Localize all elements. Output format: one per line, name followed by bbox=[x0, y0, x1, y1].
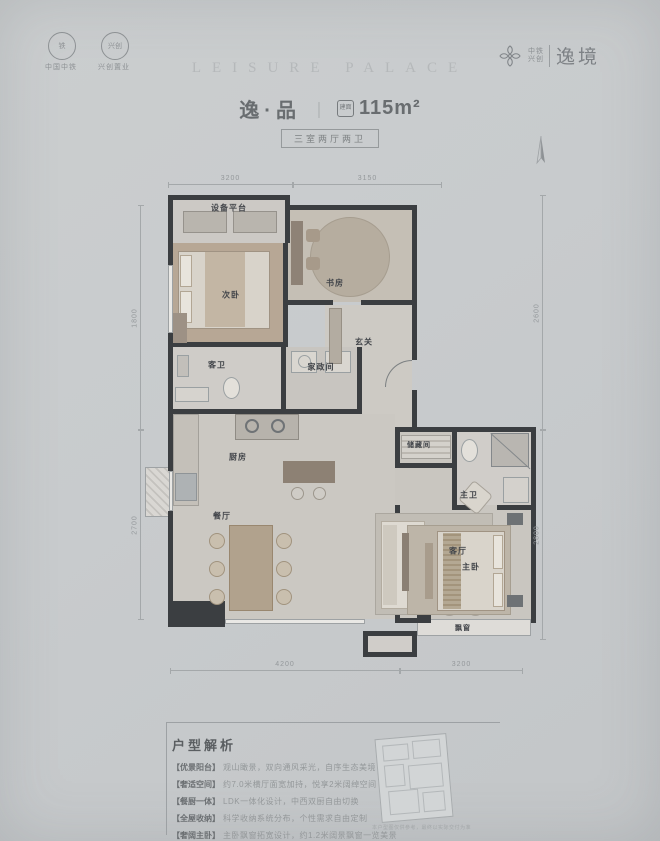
china-railway-seal-icon: 铁 bbox=[48, 32, 76, 60]
bed-bench bbox=[425, 543, 433, 599]
room-label-master-bed: 主卧 bbox=[462, 562, 480, 573]
dining-chair bbox=[209, 533, 225, 549]
room-label-foyer: 玄关 bbox=[355, 337, 373, 348]
building-area-icon: 建面 bbox=[337, 100, 354, 117]
stool bbox=[291, 487, 304, 500]
analysis-item: 【奢阔主卧】主卧飘窗拓宽设计，约1.2米阔景飘窗一览美景 bbox=[172, 830, 500, 841]
wall-segment bbox=[168, 243, 173, 265]
dining-table bbox=[229, 525, 273, 611]
analysis-item-text: 观山瞰景，双向通风采光，自序生态美境 bbox=[223, 763, 376, 772]
thumb-room bbox=[388, 789, 420, 816]
shower-fixture bbox=[177, 355, 189, 377]
sofa-back-cushions bbox=[383, 525, 397, 605]
thumb-room bbox=[412, 739, 441, 759]
thumb-room bbox=[384, 764, 406, 788]
room-label-storage: 储藏间 bbox=[407, 440, 431, 450]
wall-segment bbox=[452, 432, 457, 510]
room-label-laundry: 家政间 bbox=[308, 362, 335, 373]
burner bbox=[271, 419, 285, 433]
bath-vanity bbox=[503, 477, 529, 503]
room-label-kitchen: 厨房 bbox=[229, 452, 247, 463]
floorplan-poster: 铁 中国中铁 兴创 兴创置业 中铁 兴创 逸境 LEISURE PALACE 逸… bbox=[0, 0, 660, 841]
title-english: LEISURE PALACE bbox=[0, 60, 660, 77]
analysis-item-text: LDK一体化设计，中西双厨自由切换 bbox=[223, 797, 359, 806]
layout-badge: 三室两厅两卫 bbox=[281, 129, 379, 148]
analysis-title: 户型解析 bbox=[172, 735, 500, 754]
room-label-living: 客厅 bbox=[449, 546, 467, 557]
analysis-item-tag: 【全屋收纳】 bbox=[172, 814, 220, 823]
wall-segment bbox=[357, 347, 362, 409]
wall-segment bbox=[395, 463, 457, 468]
thumb-room bbox=[408, 763, 444, 790]
room-label-master-bath: 主卫 bbox=[460, 490, 478, 501]
xingchuang-seal-icon: 兴创 bbox=[101, 32, 129, 60]
wall-segment bbox=[395, 432, 400, 466]
pillow bbox=[180, 255, 192, 287]
title-separator: ｜ bbox=[311, 97, 327, 121]
dim-bottom-right: 3200 bbox=[400, 670, 523, 671]
analysis-item-text: 主卧飘窗拓宽设计，约1.2米阔景飘窗一览美景 bbox=[223, 831, 397, 840]
platform-unit bbox=[233, 211, 277, 233]
wall-segment bbox=[168, 195, 290, 200]
dim-top-right: 3150 bbox=[293, 184, 442, 185]
pillow bbox=[493, 573, 503, 607]
window-south-glass bbox=[225, 619, 365, 624]
dining-chair bbox=[276, 561, 292, 577]
thumb-room bbox=[422, 790, 446, 812]
platform-unit bbox=[183, 211, 227, 233]
dining-chair bbox=[209, 589, 225, 605]
analysis-item-tag: 【优景阳台】 bbox=[172, 763, 220, 772]
analysis-item-tag: 【奢适空间】 bbox=[172, 780, 220, 789]
round-rug bbox=[310, 217, 390, 297]
bay-window-strip bbox=[417, 619, 531, 636]
dim-left-lower: 2700 bbox=[140, 430, 141, 620]
toilet bbox=[223, 377, 240, 399]
thumb-room bbox=[382, 743, 409, 761]
wall-segment bbox=[285, 195, 290, 243]
desk bbox=[291, 221, 303, 285]
shoe-cabinet bbox=[329, 308, 342, 364]
dining-chair bbox=[276, 589, 292, 605]
burner bbox=[245, 419, 259, 433]
wall-segment bbox=[168, 195, 173, 243]
wall-segment bbox=[288, 300, 333, 305]
ac-platform bbox=[145, 467, 170, 517]
analysis-item: 【优景阳台】观山瞰景，双向通风采光，自序生态美境 bbox=[172, 762, 500, 773]
pillow bbox=[493, 535, 503, 569]
analysis-item-text: 约7.0米横厅面宽加持，悦享2米阔绰空间 bbox=[223, 780, 377, 789]
wall-segment bbox=[281, 347, 286, 409]
mini-floorplan-thumbnail bbox=[374, 733, 453, 823]
room-label-dining: 餐厅 bbox=[213, 511, 231, 522]
wall-segment bbox=[412, 390, 417, 430]
brand-small-line1: 中铁 bbox=[528, 48, 544, 56]
room-label-bedroom2: 次卧 bbox=[222, 290, 240, 301]
wall-segment bbox=[412, 205, 417, 305]
kitchen-sink bbox=[175, 473, 197, 501]
area-value: 115m² bbox=[359, 97, 421, 120]
floorplan-drawing: 设备平台 次卧 书房 玄关 客卫 家政间 厨房 餐厅 客厅 储藏间 主卫 主卧 … bbox=[145, 195, 537, 660]
analysis-item-tag: 【餐厨一体】 bbox=[172, 797, 220, 806]
wall-segment bbox=[412, 305, 417, 360]
analysis-item-text: 科学收纳系统分布，个性需求自由定制 bbox=[223, 814, 368, 823]
tv-cabinet bbox=[402, 533, 409, 591]
analysis-item-tag: 【奢阔主卧】 bbox=[172, 831, 220, 840]
wall-segment bbox=[497, 505, 536, 510]
chair bbox=[306, 257, 320, 270]
thumbnail-caption: 本户型图仅供参考，最终以实际交付为准 bbox=[372, 824, 462, 831]
room-label-bay-window: 飘窗 bbox=[455, 623, 471, 633]
nightstand bbox=[507, 595, 523, 607]
north-compass-icon bbox=[530, 133, 552, 173]
toilet bbox=[461, 439, 478, 462]
wall-segment bbox=[288, 205, 417, 210]
room-label-guest-bath: 客卫 bbox=[208, 360, 226, 371]
room-label-platform: 设备平台 bbox=[211, 203, 247, 214]
stool bbox=[313, 487, 326, 500]
bed-runner bbox=[443, 533, 461, 609]
wardrobe bbox=[173, 313, 187, 343]
nightstand bbox=[507, 513, 523, 525]
kitchen-island bbox=[283, 461, 335, 483]
wall-segment bbox=[283, 243, 288, 347]
unit-name: 逸·品 bbox=[239, 94, 301, 123]
dining-chair bbox=[276, 533, 292, 549]
bay-box-south bbox=[363, 631, 417, 657]
wall-segment bbox=[361, 300, 417, 305]
unit-title-row: 逸·品 ｜ 建面 115m² bbox=[0, 94, 660, 123]
chair bbox=[306, 229, 320, 242]
dim-left-upper: 1800 bbox=[140, 205, 141, 430]
room-label-study: 书房 bbox=[326, 278, 344, 289]
dim-right-lower: 2800 bbox=[542, 430, 543, 640]
wall-segment bbox=[395, 427, 536, 432]
dim-bottom-left: 4200 bbox=[170, 670, 400, 671]
dim-right-upper: 2600 bbox=[542, 195, 543, 430]
dining-chair bbox=[209, 561, 225, 577]
bath-vanity bbox=[175, 387, 209, 402]
dim-top-left: 3200 bbox=[168, 184, 293, 185]
wall-segment bbox=[168, 511, 173, 607]
